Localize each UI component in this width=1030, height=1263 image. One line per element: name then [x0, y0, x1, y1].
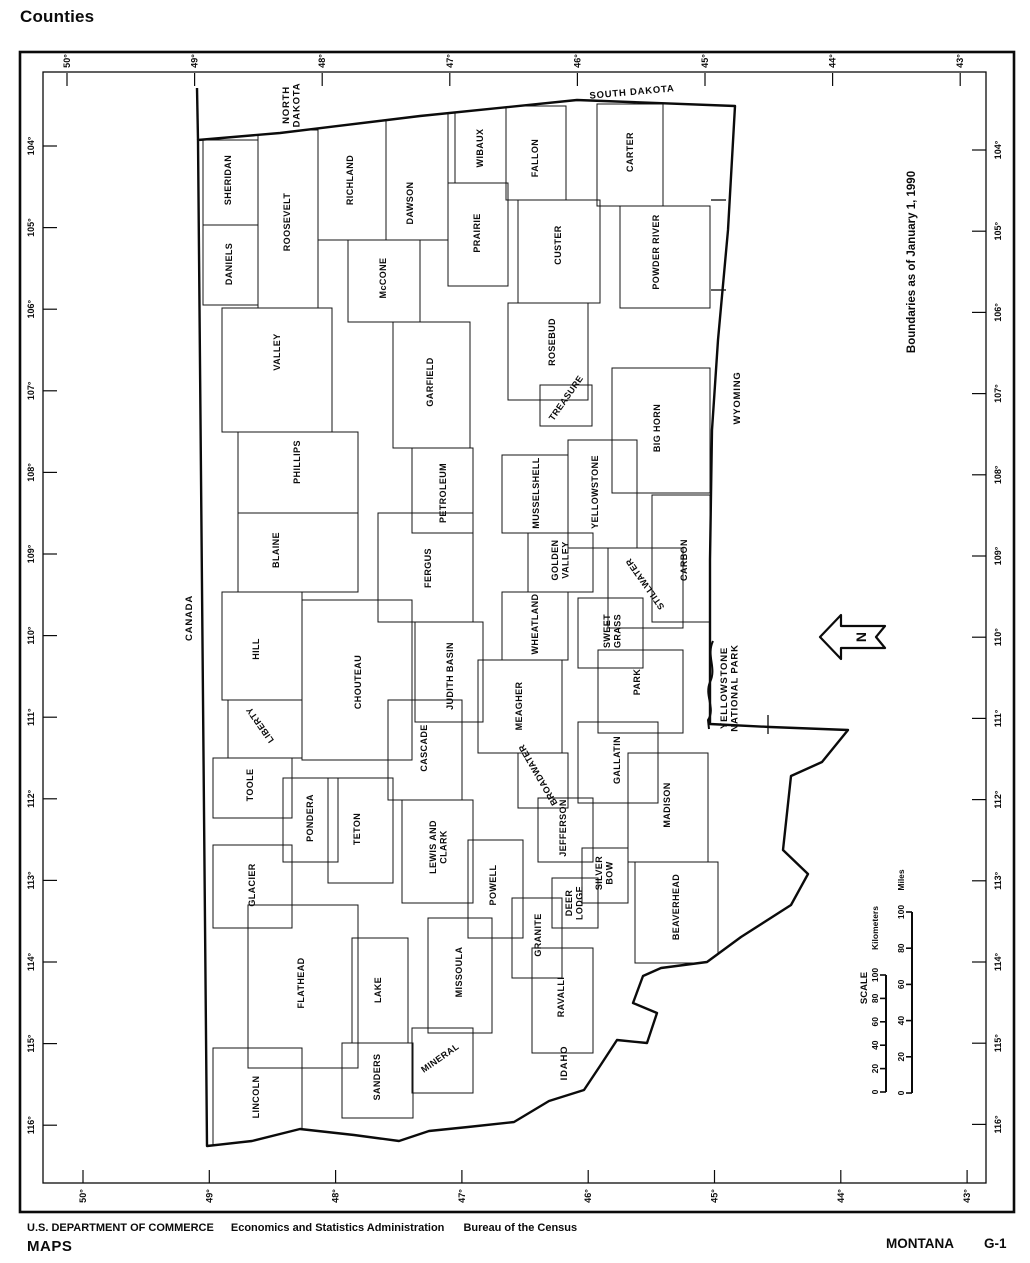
axis-tick-label: 115°	[993, 1034, 1003, 1053]
county-label: SHERIDAN	[223, 155, 233, 205]
neighbor-label: YELLOWSTONENATIONAL PARK	[719, 644, 741, 731]
axis-tick-label: 111°	[993, 709, 1003, 727]
footer-agency: U.S. DEPARTMENT OF COMMERCE	[27, 1222, 214, 1234]
axis-tick-label: 115°	[26, 1034, 36, 1053]
boundaries-note: Boundaries as of January 1, 1990	[906, 171, 918, 353]
footer-bureau: Bureau of the Census	[463, 1222, 577, 1234]
county-label: SANDERS	[372, 1054, 382, 1101]
axis-tick-label: 116°	[993, 1115, 1003, 1134]
county-label: CHOUTEAU	[353, 655, 363, 709]
county-label: MADISON	[662, 782, 672, 827]
axis-tick-label: 48°	[317, 54, 327, 68]
axis-tick-label: 47°	[457, 1189, 467, 1203]
scale-tick-label: 0	[870, 1089, 880, 1094]
county-label: PONDERA	[305, 794, 315, 842]
county-label: CASCADE	[419, 724, 429, 771]
axis-tick-label: 114°	[993, 953, 1003, 972]
axis-tick-label: 44°	[828, 54, 838, 68]
scale-unit-label: Miles	[896, 869, 906, 891]
county-label: CARBON	[679, 539, 689, 581]
canada-border-line	[197, 88, 198, 140]
scale-title: SCALE	[859, 972, 870, 1004]
county-label: HILL	[251, 638, 261, 660]
county-label: GOLDENVALLEY	[550, 540, 571, 581]
county-label: RICHLAND	[345, 155, 355, 205]
county-label: GARFIELD	[425, 357, 435, 406]
axis-tick-label: 46°	[572, 54, 582, 68]
axis-tick-label: 105°	[26, 218, 36, 237]
axis-tick-label: 111°	[26, 708, 36, 726]
county-label: LINCOLN	[251, 1076, 261, 1119]
neighbor-label: NORTHDAKOTA	[281, 83, 303, 128]
county-label: ROSEBUD	[547, 318, 557, 366]
axis-tick-label: 112°	[26, 789, 36, 808]
neighbor-label: CANADA	[184, 595, 195, 641]
county-boundary-box	[386, 112, 448, 240]
north-arrow-label: N	[853, 632, 869, 642]
axis-tick-label: 105°	[993, 221, 1003, 240]
county-label: CUSTER	[553, 225, 563, 265]
axis-tick-label: 106°	[993, 303, 1003, 322]
county-label: DANIELS	[224, 243, 234, 285]
scale-tick-label: 40	[870, 1040, 880, 1050]
footer-credit: U.S. DEPARTMENT OF COMMERCE Economics an…	[27, 1222, 577, 1234]
axis-tick-label: 110°	[993, 628, 1003, 647]
axis-tick-label: 45°	[710, 1189, 720, 1203]
axis-tick-label: 109°	[26, 544, 36, 563]
map-canvas: 50°49°48°47°46°45°44°43°50°49°48°47°46°4…	[0, 0, 1030, 1263]
axis-tick-label: 44°	[836, 1189, 846, 1203]
county-label: LIBERTY	[244, 705, 276, 745]
neighbor-label: SOUTH DAKOTA	[589, 83, 675, 101]
scale-tick-label: 20	[870, 1064, 880, 1074]
axis-tick-label: 113°	[26, 871, 36, 890]
axis-tick-label: 106°	[26, 299, 36, 318]
county-label: TREASURE	[547, 374, 585, 423]
axis-tick-label: 104°	[993, 140, 1003, 159]
scale-tick-label: 0	[896, 1090, 906, 1095]
county-label: JUDITH BASIN	[445, 642, 455, 710]
axis-tick-label: 110°	[26, 626, 36, 645]
county-label: POWDER RIVER	[651, 214, 661, 289]
county-label: MISSOULA	[454, 947, 464, 998]
county-label: BLAINE	[271, 532, 281, 568]
axis-tick-label: 43°	[955, 54, 965, 68]
north-arrow-icon: N	[820, 615, 885, 659]
neighbor-label: WYOMING	[732, 371, 743, 424]
county-label: SWEETGRASS	[602, 614, 623, 648]
scale-tick-label: 100	[870, 968, 880, 982]
map-labels: SHERIDANDANIELSROOSEVELTRICHLANDDAWSONWI…	[184, 83, 918, 1119]
county-label: YELLOWSTONE	[590, 455, 600, 529]
county-label: STILLWATER	[624, 556, 667, 611]
county-label: TOOLE	[245, 769, 255, 802]
county-label: PHILLIPS	[292, 440, 302, 484]
county-label: ROOSEVELT	[282, 193, 292, 252]
county-label: FERGUS	[423, 548, 433, 588]
county-label: WIBAUX	[475, 129, 485, 168]
county-boundary-box	[568, 440, 637, 548]
axis-tick-label: 48°	[331, 1189, 341, 1203]
neighbor-label: IDAHO	[559, 1046, 570, 1081]
axis-tick-label: 50°	[78, 1189, 88, 1203]
county-label: VALLEY	[272, 333, 282, 370]
scale-tick-label: 100	[896, 905, 906, 919]
county-label: PARK	[632, 669, 642, 696]
axis-tick-label: 109°	[993, 546, 1003, 565]
county-label: JEFFERSON	[558, 799, 568, 857]
county-label: PETROLEUM	[438, 463, 448, 523]
county-label: DEERLODGE	[564, 886, 585, 920]
axis-tick-label: 50°	[62, 54, 72, 68]
county-label: MUSSELSHELL	[531, 457, 541, 529]
footer-division: Economics and Statistics Administration	[231, 1222, 445, 1234]
scale-tick-label: 60	[870, 1017, 880, 1027]
county-label: GALLATIN	[612, 736, 622, 784]
axis-tick-label: 47°	[445, 54, 455, 68]
axis-tick-label: 113°	[993, 871, 1003, 890]
county-label: MINERAL	[419, 1041, 461, 1074]
axis-tick-label: 49°	[204, 1189, 214, 1203]
county-label: GLACIER	[247, 863, 257, 906]
scale-unit-label: Kilometers	[870, 906, 880, 950]
county-label: McCONE	[378, 258, 388, 299]
county-label: FLATHEAD	[296, 957, 306, 1008]
axis-tick-label: 112°	[993, 790, 1003, 809]
county-label: LAKE	[373, 977, 383, 1003]
county-label: MEAGHER	[514, 682, 524, 731]
county-label: DAWSON	[405, 182, 415, 225]
axis-tick-label: 46°	[583, 1189, 593, 1203]
scale-tick-label: 60	[896, 979, 906, 989]
county-label: SILVERBOW	[594, 856, 615, 890]
county-label: POWELL	[488, 864, 498, 905]
county-boundary-box	[620, 206, 710, 308]
county-label: BEAVERHEAD	[671, 874, 681, 940]
footer-brand: MAPS	[27, 1238, 72, 1255]
county-label: LEWIS ANDCLARK	[428, 820, 449, 874]
axis-tick-label: 45°	[700, 54, 710, 68]
axis-tick-label: 108°	[993, 465, 1003, 484]
axis-tick-label: 104°	[26, 136, 36, 155]
county-label: RAVALLI	[556, 977, 566, 1017]
axis-tick-label: 49°	[190, 54, 200, 68]
scale-tick-label: 20	[896, 1052, 906, 1062]
census-map-page: Counties 50°49°48°47°46°45°44°43°50°49°4…	[0, 0, 1030, 1263]
scale-tick-label: 40	[896, 1016, 906, 1026]
axis-tick-label: 43°	[962, 1189, 972, 1203]
footer-page-code: G-1	[984, 1236, 1007, 1251]
county-label: BIG HORN	[652, 404, 662, 452]
axis-tick-label: 107°	[26, 381, 36, 400]
county-label: FALLON	[530, 139, 540, 177]
county-label: PRAIRIE	[472, 213, 482, 252]
footer-state-name: MONTANA	[886, 1236, 954, 1251]
county-label: WHEATLAND	[530, 593, 540, 654]
scale-bar: SCALE020406080100Kilometers020406080100M…	[859, 869, 912, 1095]
scale-tick-label: 80	[870, 993, 880, 1003]
county-label: TETON	[352, 813, 362, 845]
county-label: CARTER	[625, 132, 635, 172]
axis-tick-label: 114°	[26, 953, 36, 972]
county-boundary-box	[222, 592, 302, 700]
axis-tick-label: 116°	[26, 1116, 36, 1135]
axis-tick-label: 108°	[26, 463, 36, 482]
county-label: GRANITE	[533, 913, 543, 956]
axis-tick-label: 107°	[993, 384, 1003, 403]
county-boundary-box	[238, 513, 358, 592]
scale-tick-label: 80	[896, 943, 906, 953]
